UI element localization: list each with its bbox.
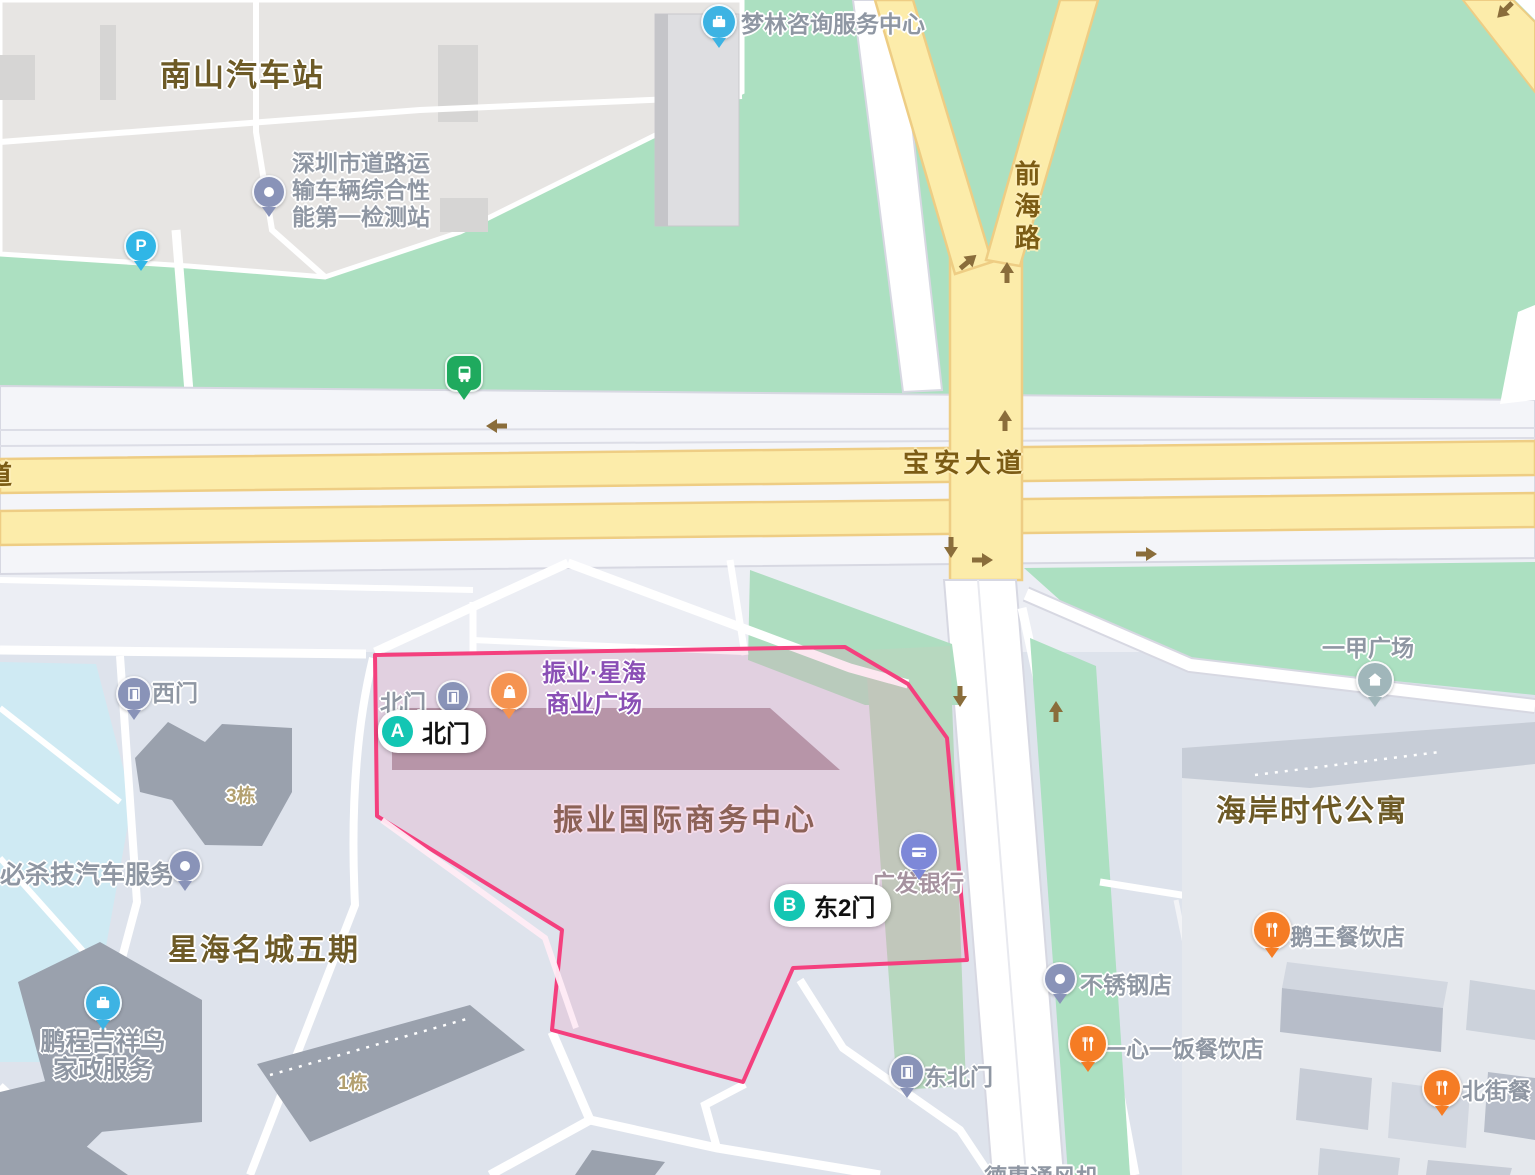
inspection-station-pin[interactable] xyxy=(252,175,286,217)
yixinyifan-restaurant-pin[interactable] xyxy=(1068,1024,1108,1072)
dot-icon xyxy=(1043,962,1077,996)
door-icon xyxy=(436,680,470,714)
menglin-company-pin[interactable] xyxy=(701,4,737,48)
dot-icon xyxy=(168,849,202,883)
road-label-baoan: 宝安大道 xyxy=(903,443,1027,480)
door-icon xyxy=(116,676,152,712)
poi-label-ewang[interactable]: 鹅王餐饮店 xyxy=(1290,918,1405,952)
poi-label-pengcheng[interactable]: 鹏程吉祥鸟 家政服务 xyxy=(40,1028,165,1084)
yijia-plaza-pin[interactable] xyxy=(1356,661,1394,707)
area-label-zhenye-center: 振业国际商务中心 xyxy=(553,795,817,839)
shopping-plaza-pin[interactable] xyxy=(489,671,529,719)
parking-icon: P xyxy=(124,229,158,263)
building-label-1: 1栋 xyxy=(338,1068,368,1095)
bus-icon xyxy=(445,354,483,392)
cutlery-icon xyxy=(1068,1024,1108,1064)
gate-pill-a[interactable]: A 北门 xyxy=(378,710,486,753)
west-gate-pin[interactable] xyxy=(116,676,152,720)
bishaji-auto-pin[interactable] xyxy=(168,849,202,891)
bank-card-icon xyxy=(899,832,939,872)
poi-label-beijie[interactable]: 北街餐 xyxy=(1462,1072,1531,1106)
area-label-nanshan-bus-station: 南山汽车站 xyxy=(160,50,325,95)
poi-label-dehui-partial: 德惠通风机 xyxy=(984,1158,1099,1175)
poi-label-yijia-plaza[interactable]: 一甲广场 xyxy=(1322,629,1414,663)
bus-stop-pin[interactable] xyxy=(445,354,483,400)
door-icon xyxy=(889,1054,925,1090)
gate-pill-b[interactable]: B 东2门 xyxy=(770,884,891,927)
map-canvas[interactable]: 南山汽车站 深圳市道路运 输车辆综合性 能第一检测站 梦林咨询服务中心 前海路 … xyxy=(0,0,1535,1175)
poi-label-menglin[interactable]: 梦林咨询服务中心 xyxy=(741,5,925,39)
gate-b-badge: B xyxy=(774,890,805,921)
poi-label-zhenye-xinghai-plaza[interactable]: 振业·星海 商业广场 xyxy=(542,658,646,720)
house-icon xyxy=(1356,661,1394,699)
briefcase-icon xyxy=(701,4,737,40)
road-label-qianhai: 前海路 xyxy=(1008,160,1045,256)
road-label-partial: 道 xyxy=(0,455,17,492)
beijie-restaurant-pin[interactable] xyxy=(1422,1068,1462,1116)
cutlery-icon xyxy=(1422,1068,1462,1108)
parking-pin[interactable]: P xyxy=(124,229,158,271)
area-label-xinghai-mingcheng: 星海名城五期 xyxy=(168,925,360,969)
guangfa-bank-pin[interactable] xyxy=(899,832,939,880)
gate-a-badge: A xyxy=(382,716,413,747)
poi-label-inspection-station[interactable]: 深圳市道路运 输车辆综合性 能第一检测站 xyxy=(292,150,430,231)
ewang-restaurant-pin[interactable] xyxy=(1252,910,1292,958)
poi-label-stainless[interactable]: 不锈钢店 xyxy=(1080,966,1172,1000)
poi-label-bishaji[interactable]: 必杀技汽车服务 xyxy=(0,855,175,891)
poi-label-northeast-gate[interactable]: 东北门 xyxy=(924,1058,993,1092)
baoan-avenue-road xyxy=(0,386,1535,574)
gate-a-label: 北门 xyxy=(422,714,470,749)
northeast-gate-pin[interactable] xyxy=(889,1054,925,1098)
briefcase-icon xyxy=(84,984,122,1022)
area-label-haian-apartment: 海岸时代公寓 xyxy=(1216,786,1408,830)
map-background xyxy=(0,0,1535,1175)
poi-label-west-gate[interactable]: 西门 xyxy=(152,674,198,708)
stainless-shop-pin[interactable] xyxy=(1043,962,1077,1004)
pengcheng-company-pin[interactable] xyxy=(84,984,122,1030)
gate-b-label: 东2门 xyxy=(814,888,875,923)
poi-label-yixinyifan[interactable]: 一心一饭餐饮店 xyxy=(1103,1030,1264,1064)
dot-icon xyxy=(252,175,286,209)
shopping-bag-icon xyxy=(489,671,529,711)
building-label-3: 3栋 xyxy=(226,781,256,808)
cutlery-icon xyxy=(1252,910,1292,950)
